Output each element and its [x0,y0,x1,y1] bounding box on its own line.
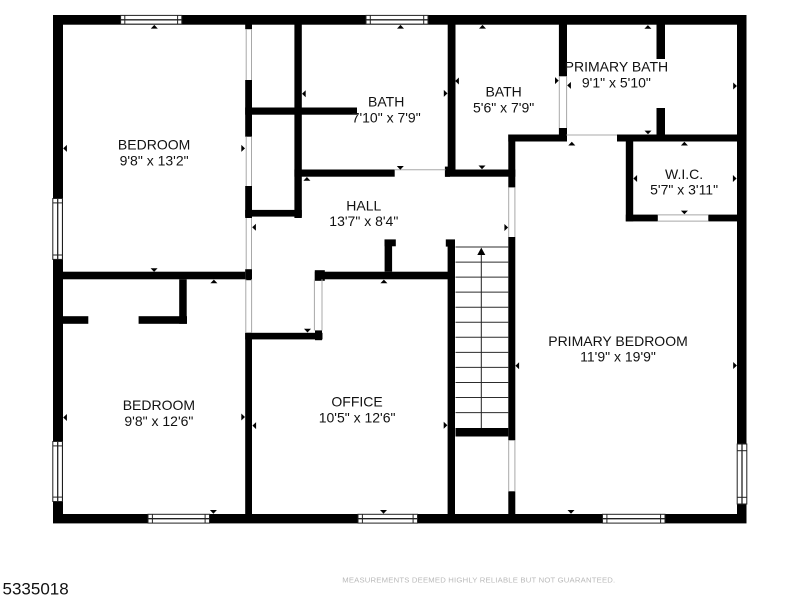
svg-text:10'5" x 12'6": 10'5" x 12'6" [319,410,396,426]
svg-text:OFFICE: OFFICE [331,394,382,410]
svg-text:PRIMARY BEDROOM: PRIMARY BEDROOM [548,333,688,349]
svg-text:9'8" x 12'6": 9'8" x 12'6" [124,413,193,429]
svg-text:MEASUREMENTS DEEMED HIGHLY REL: MEASUREMENTS DEEMED HIGHLY RELIABLE BUT … [342,576,615,585]
svg-text:BEDROOM: BEDROOM [123,397,195,413]
svg-text:PRIMARY BATH: PRIMARY BATH [565,58,668,74]
svg-text:5'7" x 3'11": 5'7" x 3'11" [650,181,718,197]
svg-text:13'7" x 8'4": 13'7" x 8'4" [329,213,398,229]
svg-text:W.I.C.: W.I.C. [665,166,703,182]
svg-text:5335018: 5335018 [3,580,69,599]
svg-text:9'8" x 13'2": 9'8" x 13'2" [120,152,189,168]
svg-text:11'9" x 19'9": 11'9" x 19'9" [580,349,656,365]
svg-text:7'10" x 7'9": 7'10" x 7'9" [352,109,421,125]
svg-text:BATH: BATH [485,84,521,100]
svg-text:BATH: BATH [368,93,404,109]
svg-text:5'6" x 7'9": 5'6" x 7'9" [473,100,534,116]
svg-text:9'1" x 5'10": 9'1" x 5'10" [582,74,651,90]
svg-text:HALL: HALL [346,198,381,214]
svg-text:BEDROOM: BEDROOM [118,136,190,152]
